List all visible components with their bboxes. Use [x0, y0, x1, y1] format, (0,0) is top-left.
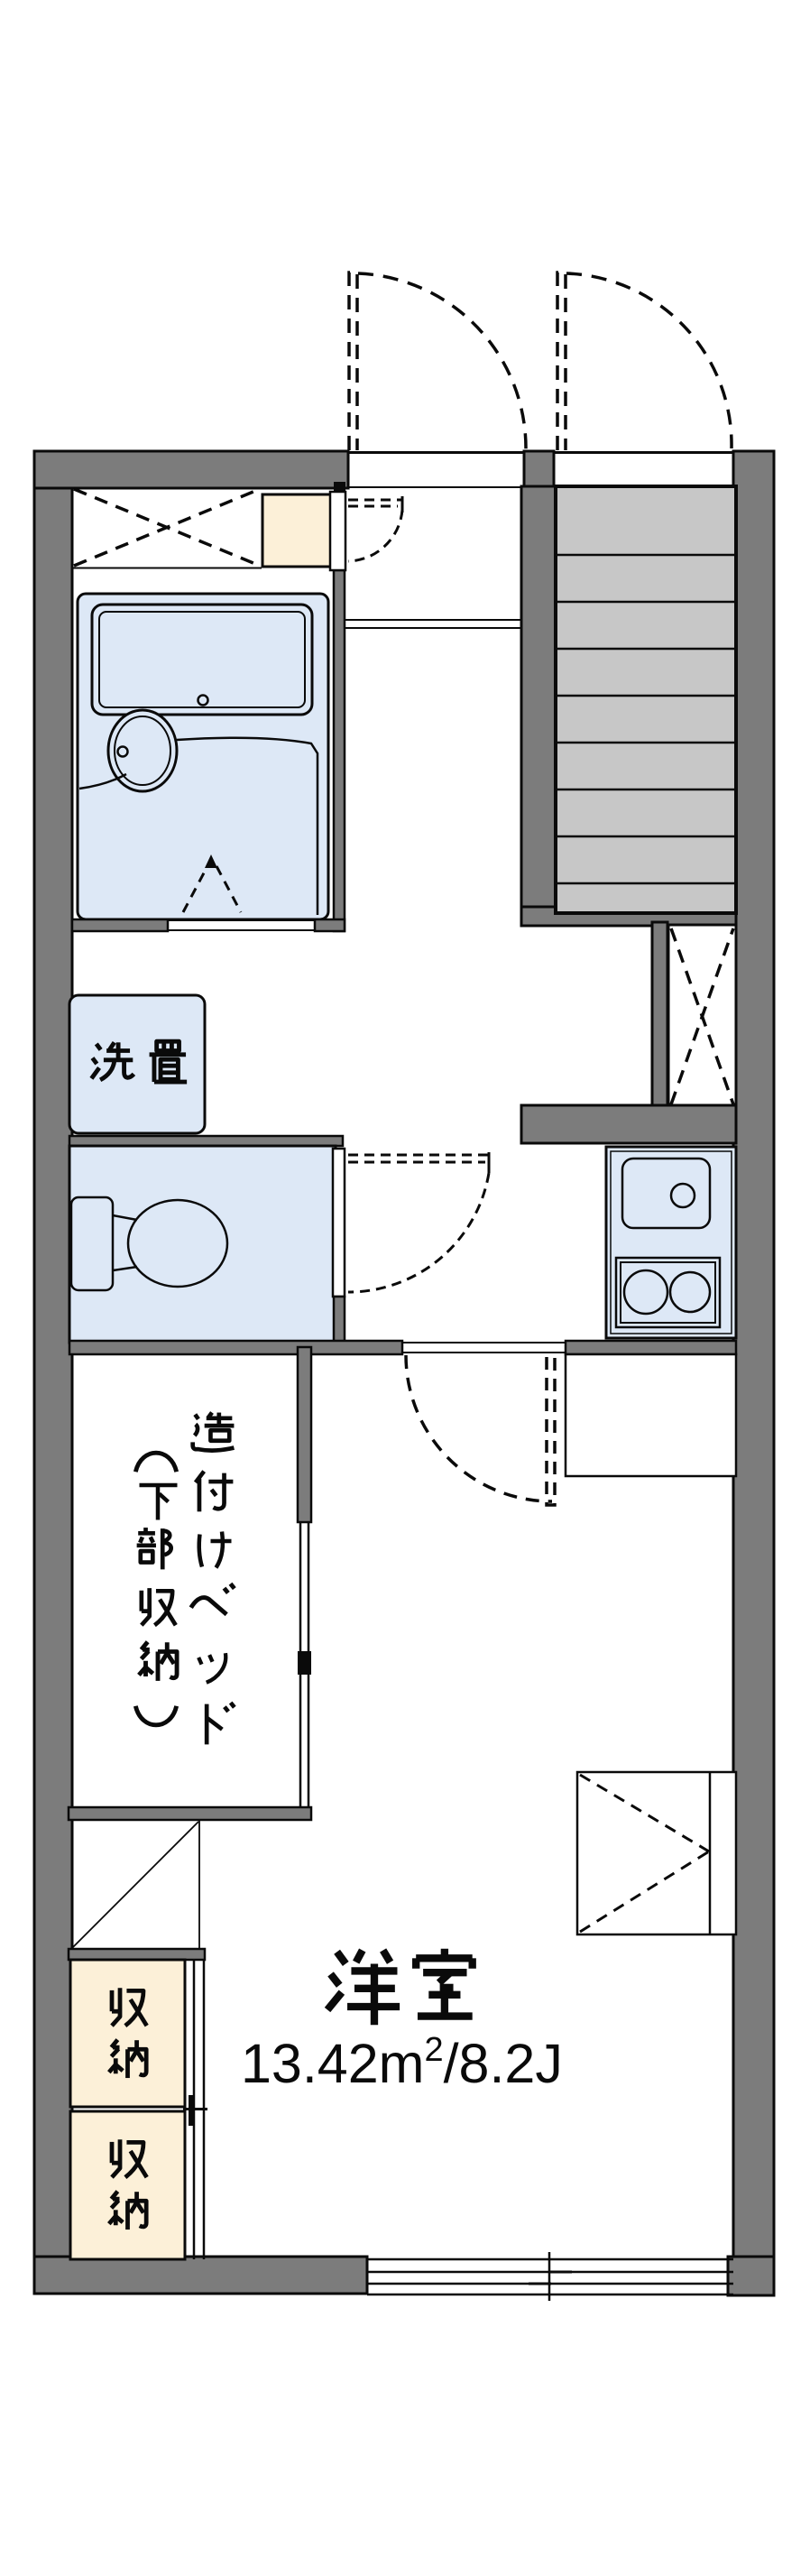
svg-text:13.42m2/8.2J: 13.42m2/8.2J [241, 2031, 563, 2094]
